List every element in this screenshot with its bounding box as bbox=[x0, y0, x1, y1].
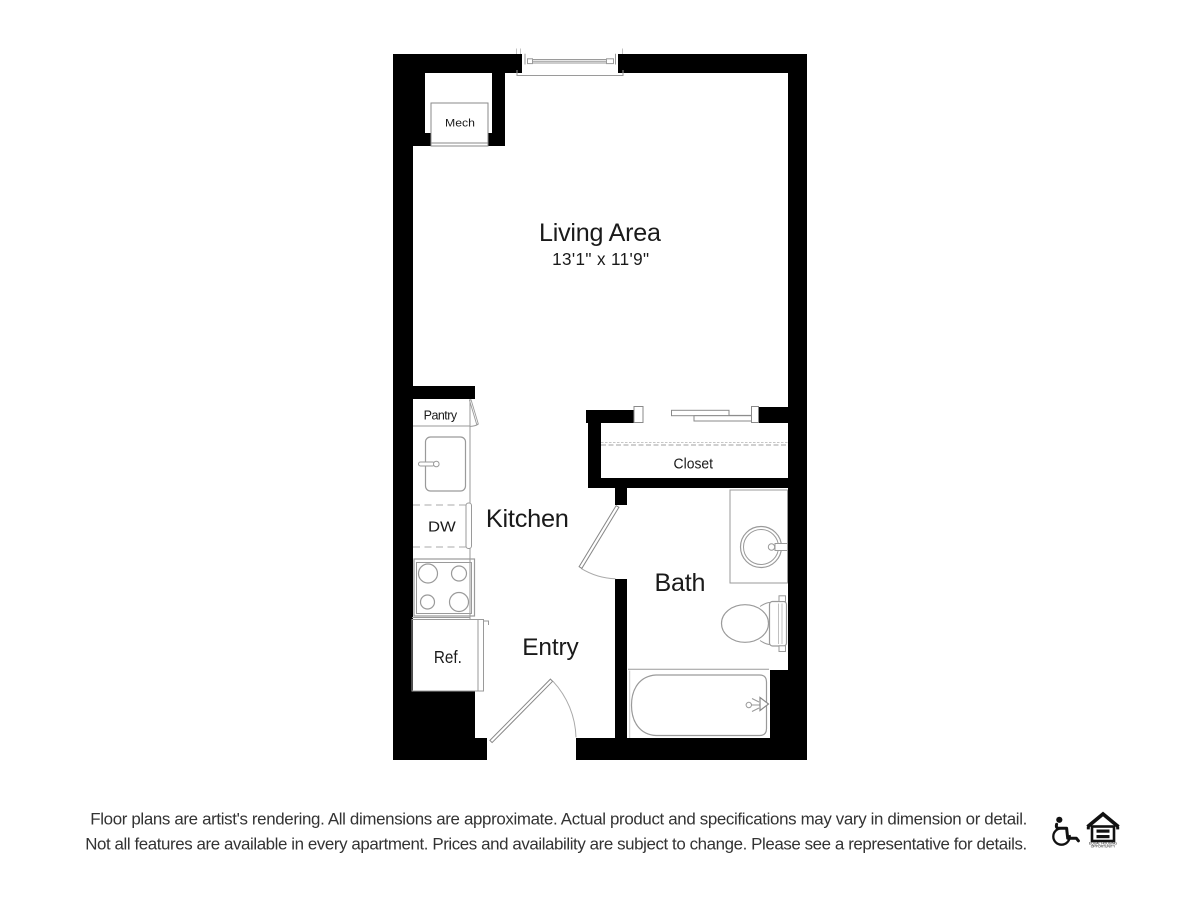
svg-text:Floor plans are artist's rende: Floor plans are artist's rendering. All … bbox=[90, 810, 1027, 829]
svg-text:Living Area: Living Area bbox=[539, 219, 661, 247]
svg-text:OPPORTUNITY: OPPORTUNITY bbox=[1091, 845, 1116, 849]
svg-text:Bath: Bath bbox=[655, 569, 706, 597]
svg-text:Ref.: Ref. bbox=[434, 647, 462, 667]
svg-text:DW: DW bbox=[428, 518, 457, 535]
svg-text:Not all features are available: Not all features are available in every … bbox=[85, 835, 1027, 854]
svg-text:Entry: Entry bbox=[522, 634, 579, 661]
svg-text:Kitchen: Kitchen bbox=[486, 505, 569, 533]
svg-text:Mech: Mech bbox=[445, 118, 475, 130]
svg-text:Pantry: Pantry bbox=[424, 408, 458, 422]
svg-text:13'1" x 11'9": 13'1" x 11'9" bbox=[552, 250, 649, 269]
svg-text:Closet: Closet bbox=[674, 456, 714, 472]
